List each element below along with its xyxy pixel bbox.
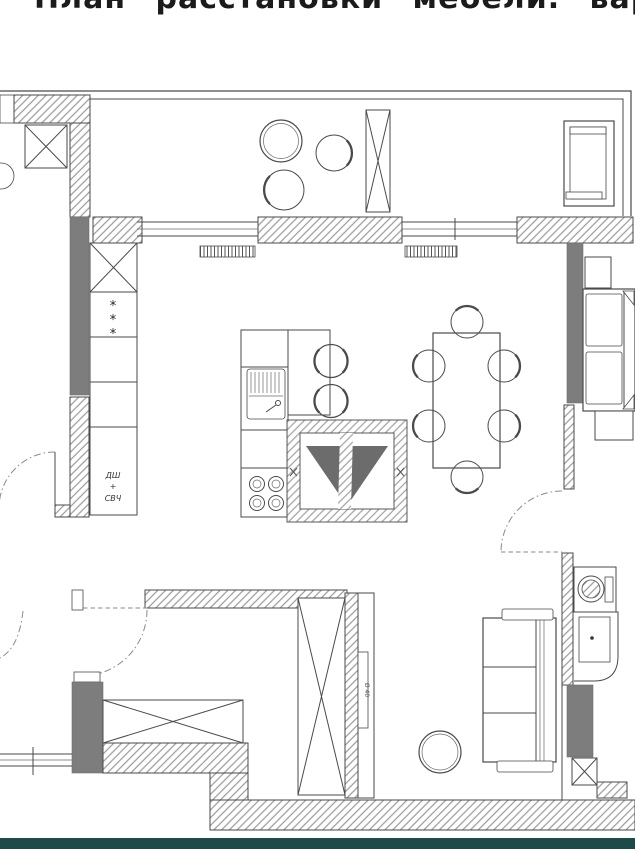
svg-text:+: + — [110, 482, 117, 491]
dining-zone — [413, 306, 520, 493]
vent-shaft-icon — [572, 758, 597, 785]
wall-solid-left — [70, 217, 89, 395]
svg-text:СВЧ: СВЧ — [105, 494, 122, 503]
wall-jamb — [0, 95, 14, 123]
sofa-right — [583, 289, 635, 411]
wall-foot — [55, 505, 70, 517]
wall-pier — [93, 217, 142, 243]
dining-chair — [451, 461, 483, 493]
wall-hatched-right — [564, 405, 574, 489]
dining-chair — [488, 350, 520, 382]
svg-text:Ø 40: Ø 40 — [363, 683, 370, 697]
wall-hatched-bottom — [103, 743, 248, 773]
kitchen-cabinet-run: * * * ДШ + СВЧ — [90, 243, 137, 515]
floorplan-screen: План расстановки мебели. вар 3 — [0, 0, 635, 849]
column-icon — [0, 163, 14, 189]
wardrobe — [103, 700, 243, 743]
wall-hatched-left — [70, 123, 90, 217]
counter — [574, 612, 618, 681]
balcony-outer-wall — [0, 91, 631, 216]
bathroom-zone — [562, 553, 627, 800]
kitchen-door — [0, 452, 55, 508]
pier-cross-column — [366, 110, 390, 212]
balcony-chair — [316, 135, 352, 171]
side-table — [595, 411, 633, 440]
bar-chair — [314, 345, 347, 378]
lower-center-zone: Ø 40 — [298, 593, 374, 798]
sink-drain-dot — [590, 636, 594, 640]
vent-shaft-icon — [25, 125, 67, 168]
wall-jamb — [74, 672, 100, 682]
bedroom-door — [81, 608, 147, 676]
wall-solid-right — [567, 243, 583, 403]
dining-table — [433, 333, 500, 468]
svg-text:*: * — [110, 327, 117, 342]
balcony-zone — [0, 91, 631, 217]
radiator-icon — [405, 246, 457, 257]
radiator-icon — [200, 246, 255, 257]
balcony-chair — [264, 170, 304, 210]
tall-wardrobe — [298, 598, 345, 795]
balcony-inner-wall — [0, 99, 623, 216]
bar-chair — [314, 385, 347, 418]
pouf-chair — [260, 120, 302, 162]
wall-hatched-small — [597, 782, 627, 798]
door-swing-arc-left — [0, 611, 23, 658]
door-living-to-room — [501, 491, 562, 552]
balcony-bench — [564, 121, 614, 206]
fridge-icon: * * * — [110, 299, 117, 342]
window-wall-top — [93, 217, 633, 257]
wall-hatched-bath — [562, 553, 573, 685]
window — [137, 222, 258, 236]
wall-jamb — [72, 590, 83, 610]
wall-hatched-partition — [345, 593, 358, 798]
wall-hatched-bottom-outer — [210, 800, 635, 830]
window — [402, 218, 517, 240]
dining-chair — [488, 410, 520, 442]
door-swing-arc — [501, 491, 562, 552]
wall-pier — [258, 217, 402, 243]
footer-accent-bar — [0, 838, 635, 849]
lower-left-zone — [0, 590, 347, 830]
bar-counter — [288, 330, 330, 415]
watermark-logo — [287, 420, 407, 522]
svg-text:*: * — [110, 299, 117, 314]
dining-chair — [413, 410, 445, 442]
sofa — [483, 609, 556, 772]
door-swing-arc — [0, 452, 55, 508]
window — [0, 747, 72, 775]
svg-text:*: * — [110, 313, 117, 328]
svg-text:ДШ: ДШ — [105, 471, 121, 480]
wall-pier — [517, 217, 633, 243]
side-table — [585, 257, 611, 288]
washing-machine-icon — [574, 567, 616, 612]
sink-icon — [247, 369, 285, 419]
lower-right-room — [419, 609, 556, 773]
floorplan-drawing: * * * ДШ + СВЧ — [0, 0, 635, 849]
watermark-stripe — [338, 433, 353, 509]
pouf — [419, 731, 461, 773]
dining-chair — [413, 350, 445, 382]
door-swing-arc — [81, 610, 147, 676]
wall-hatched-top-left — [14, 95, 90, 123]
wall-solid-pier — [72, 682, 103, 773]
wall-hatched-left-lower — [70, 397, 89, 517]
tv-panel: Ø 40 — [358, 652, 370, 728]
wall-solid-bath — [567, 685, 593, 757]
living-right-zone — [501, 243, 635, 552]
